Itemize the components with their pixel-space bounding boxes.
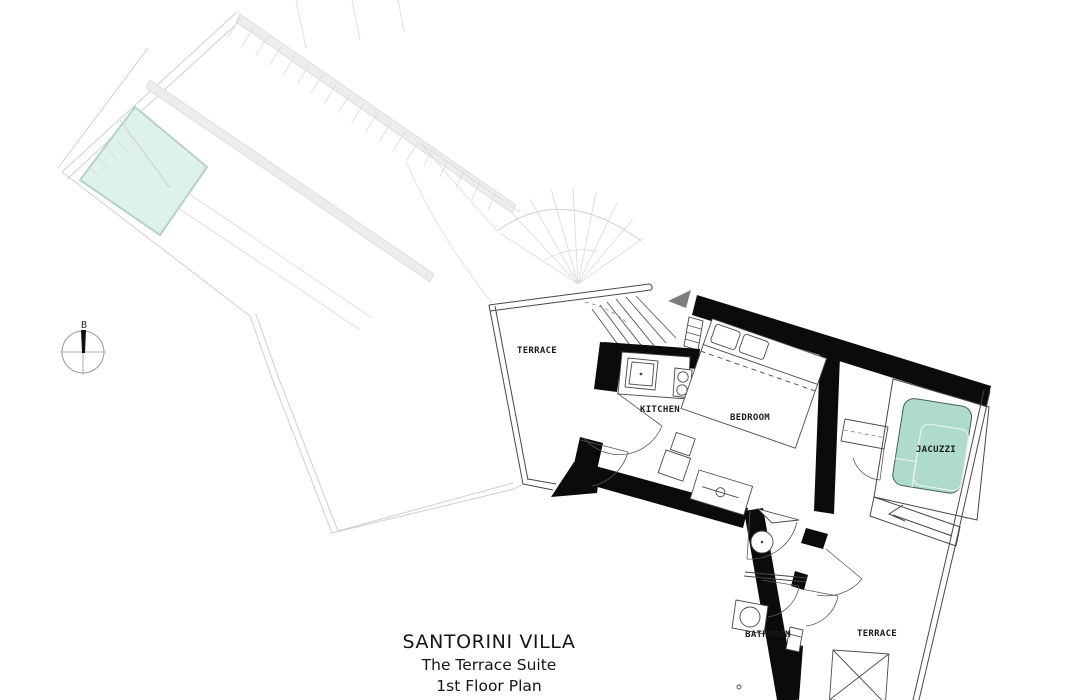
label-terrace-right: TERRACE <box>857 629 897 639</box>
spiral-stair <box>406 143 643 303</box>
compass-needle <box>81 330 86 353</box>
skylight <box>830 650 889 700</box>
compass: B <box>60 320 106 375</box>
nightstand <box>658 431 697 481</box>
compass-label: B <box>81 320 87 331</box>
entry-direction-arrow <box>668 290 691 308</box>
pool <box>80 107 207 235</box>
background-structure <box>58 0 643 533</box>
pool-water <box>80 107 207 235</box>
bathroom-sink <box>732 600 768 634</box>
title-block: SANTORINI VILLA The Terrace Suite 1st Fl… <box>402 631 575 695</box>
floor-plan-drawing: B TERRACE KITCHEN BEDROOM JACUZZI BATHRO… <box>0 0 1080 700</box>
label-bathroom: BATHROOM <box>745 630 791 640</box>
plan-floor: 1st Floor Plan <box>436 677 541 695</box>
plan-title: SANTORINI VILLA <box>402 631 575 653</box>
bedroom-window <box>841 419 888 480</box>
label-kitchen: KITCHEN <box>640 405 680 415</box>
plan-subtitle: The Terrace Suite <box>421 656 557 674</box>
floor-plan-page: B TERRACE KITCHEN BEDROOM JACUZZI BATHRO… <box>0 0 1080 700</box>
label-terrace-left: TERRACE <box>517 346 557 356</box>
label-bedroom: BEDROOM <box>730 413 770 423</box>
label-jacuzzi: JACUZZI <box>916 445 956 455</box>
